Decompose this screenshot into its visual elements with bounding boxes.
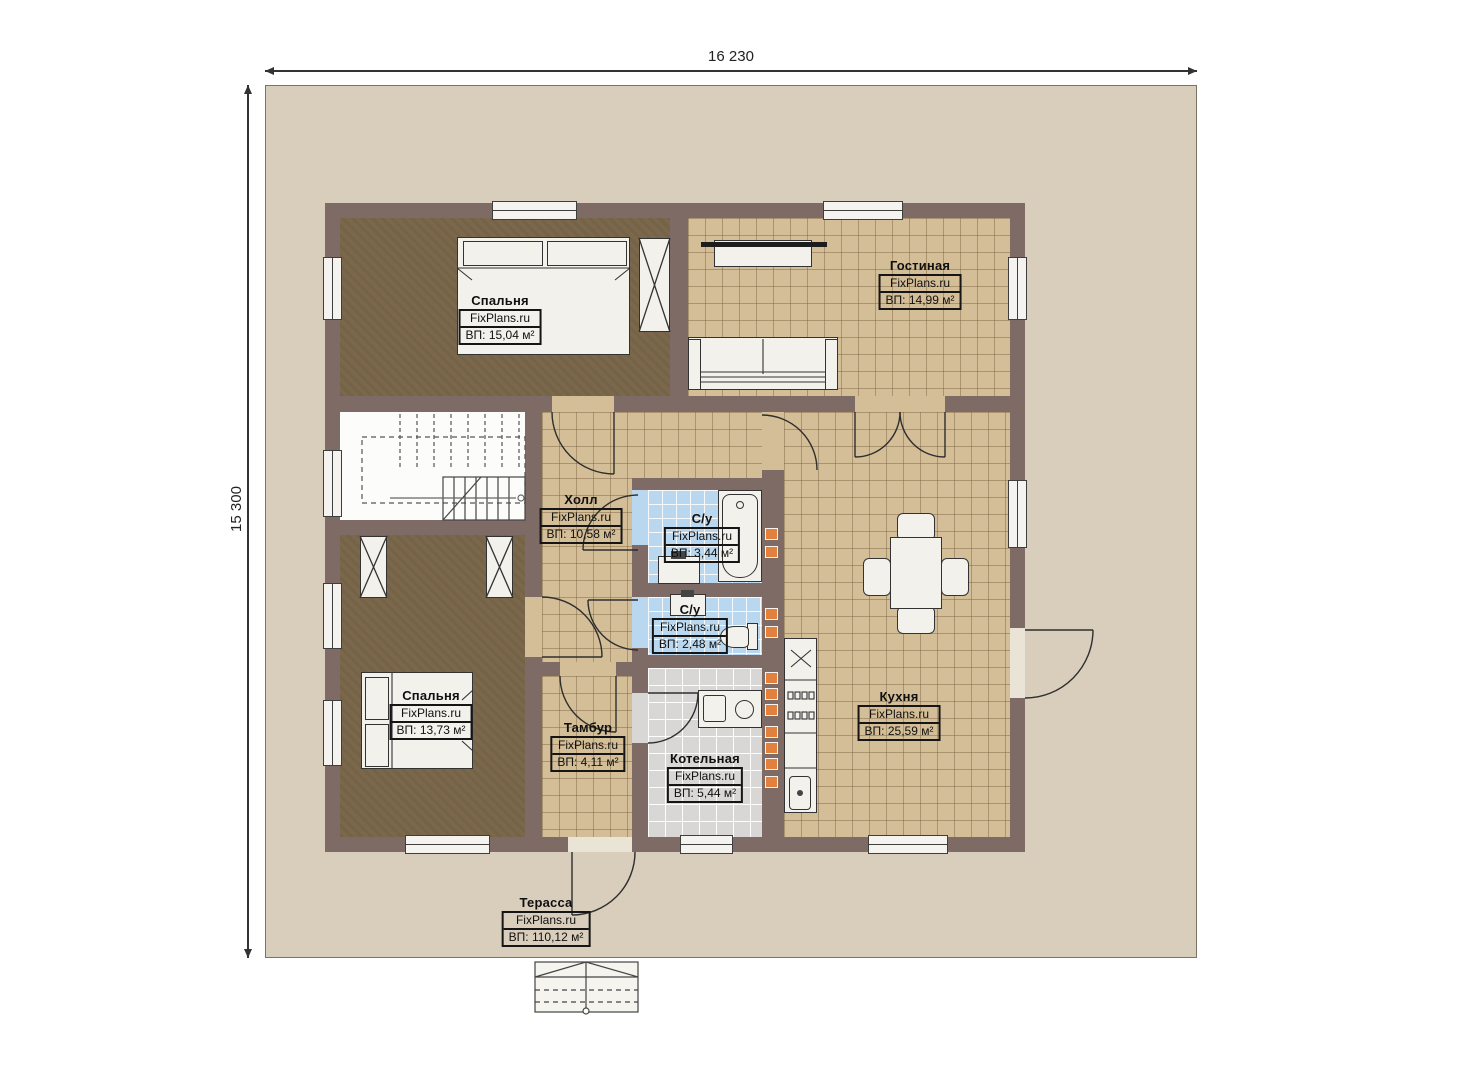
- wardrobe-x-marks: [360, 238, 670, 598]
- room-name: Терасса: [502, 895, 591, 910]
- room-name: Тамбур: [550, 720, 625, 735]
- room-name: Спальня: [459, 293, 542, 308]
- door-swings-group: [542, 412, 1093, 915]
- watermark-text: FixPlans.ru: [669, 769, 741, 786]
- dimension-line-top: [265, 70, 1197, 72]
- watermark-text: FixPlans.ru: [881, 276, 960, 293]
- dimension-height-label: 15 300: [228, 469, 246, 549]
- room-name: Гостиная: [879, 258, 962, 273]
- floor-plan: 16 230 15 300: [0, 0, 1473, 1080]
- room-label-bathroom-small: С/у FixPlans.ruВП: 2,48 м²: [652, 602, 728, 654]
- dimension-line-left: [247, 85, 249, 958]
- watermark-text: FixPlans.ru: [461, 311, 540, 328]
- dimension-arrow-up: [244, 85, 252, 94]
- room-label-kitchen: Кухня FixPlans.ruВП: 25,59 м²: [858, 689, 941, 741]
- room-label-hall: Холл FixPlans.ruВП: 10,58 м²: [540, 492, 623, 544]
- room-name: Кухня: [858, 689, 941, 704]
- room-area: ВП: 4,11 м²: [552, 755, 623, 770]
- watermark-text: FixPlans.ru: [552, 738, 623, 755]
- stairs-group: [362, 414, 525, 520]
- room-label-boiler-room: Котельная FixPlans.ruВП: 5,44 м²: [667, 751, 743, 803]
- watermark-text: FixPlans.ru: [654, 620, 726, 637]
- watermark-text: FixPlans.ru: [666, 529, 738, 546]
- watermark-text: FixPlans.ru: [860, 707, 939, 724]
- room-label-bathroom-large: С/у FixPlans.ruВП: 3,44 м²: [664, 511, 740, 563]
- room-label-bedroom-top: Спальня FixPlans.ruВП: 15,04 м²: [459, 293, 542, 345]
- watermark-text: FixPlans.ru: [504, 913, 589, 930]
- room-area: ВП: 13,73 м²: [392, 723, 471, 738]
- room-name: Холл: [540, 492, 623, 507]
- room-area: ВП: 10,58 м²: [542, 527, 621, 542]
- watermark-text: FixPlans.ru: [392, 706, 471, 723]
- room-area: ВП: 25,59 м²: [860, 724, 939, 739]
- room-area: ВП: 3,44 м²: [666, 546, 738, 561]
- room-name: Спальня: [390, 688, 473, 703]
- dimension-arrow-left: [265, 67, 274, 75]
- room-name: С/у: [652, 602, 728, 617]
- room-name: Котельная: [667, 751, 743, 766]
- watermark-text: FixPlans.ru: [542, 510, 621, 527]
- room-name: С/у: [664, 511, 740, 526]
- room-label-bedroom-bottom: Спальня FixPlans.ruВП: 13,73 м²: [390, 688, 473, 740]
- room-area: ВП: 110,12 м²: [504, 930, 589, 945]
- room-area: ВП: 14,99 м²: [881, 293, 960, 308]
- dimension-arrow-right: [1188, 67, 1197, 75]
- room-area: ВП: 5,44 м²: [669, 786, 741, 801]
- dimension-width-label: 16 230: [601, 48, 861, 65]
- room-area: ВП: 15,04 м²: [461, 328, 540, 343]
- porch-group: [535, 962, 638, 1014]
- room-label-living-room: Гостиная FixPlans.ruВП: 14,99 м²: [879, 258, 962, 310]
- room-area: ВП: 2,48 м²: [654, 637, 726, 652]
- dimension-arrow-down: [244, 949, 252, 958]
- room-label-vestibule: Тамбур FixPlans.ruВП: 4,11 м²: [550, 720, 625, 772]
- room-label-terrace: Терасса FixPlans.ruВП: 110,12 м²: [502, 895, 591, 947]
